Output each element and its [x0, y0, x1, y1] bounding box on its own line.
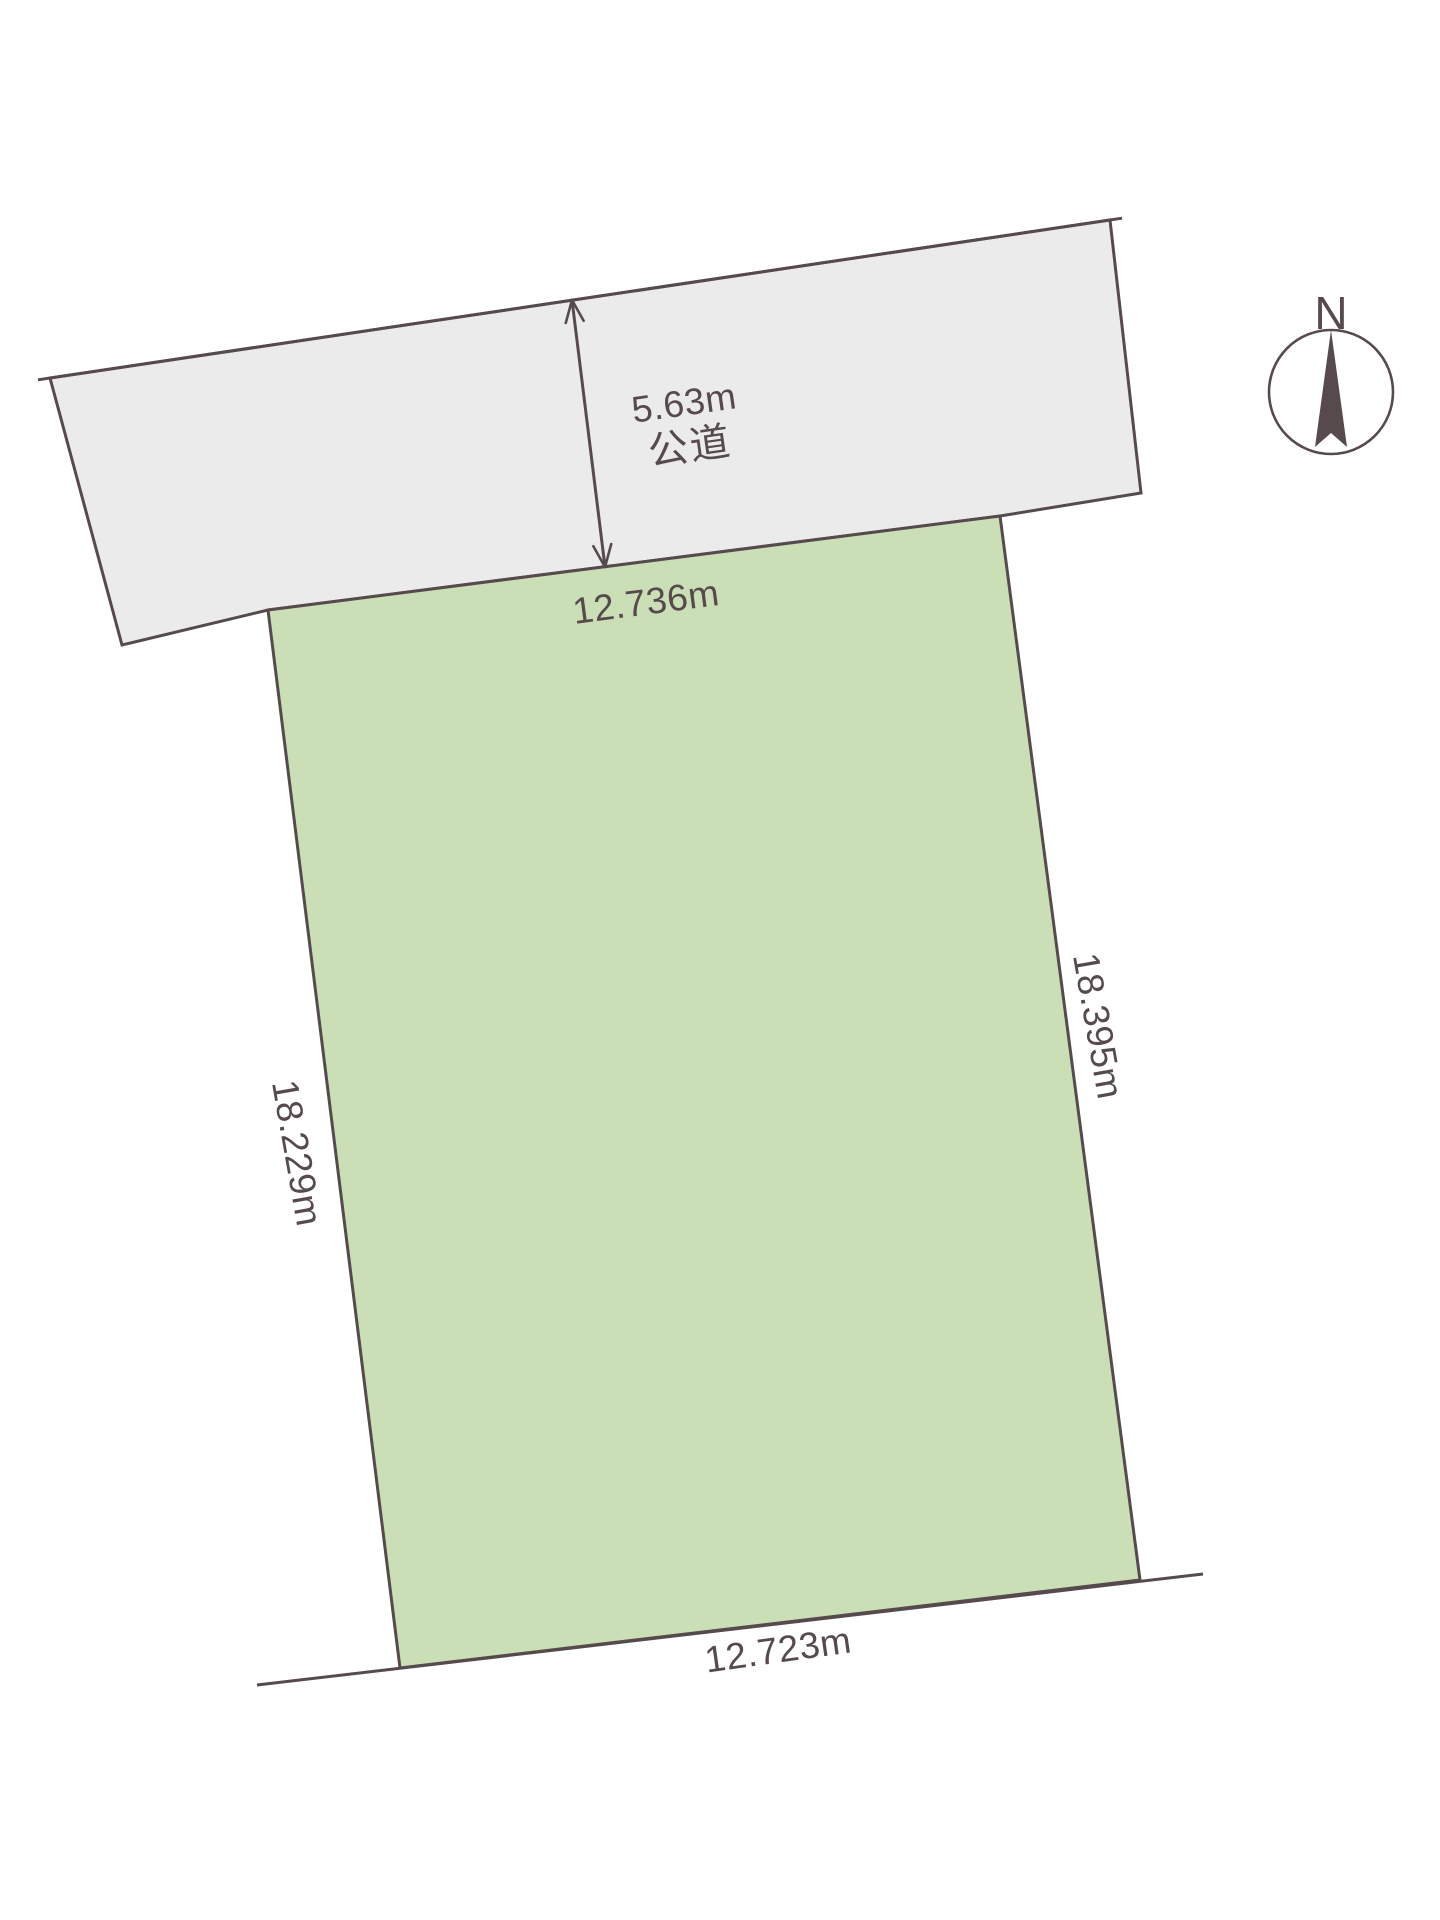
- parcel-area: [268, 516, 1140, 1668]
- compass-north-indicator: N: [1269, 287, 1393, 454]
- north-needle-icon: [1315, 330, 1347, 447]
- land-plot-diagram: 5.63m 公道 12.736m 18.395m 18.229m 12.723m…: [0, 0, 1440, 1920]
- site-plan-drawing: 5.63m 公道 12.736m 18.395m 18.229m 12.723m…: [0, 0, 1440, 1920]
- parcel-left-dimension-label: 18.229m: [264, 1077, 330, 1229]
